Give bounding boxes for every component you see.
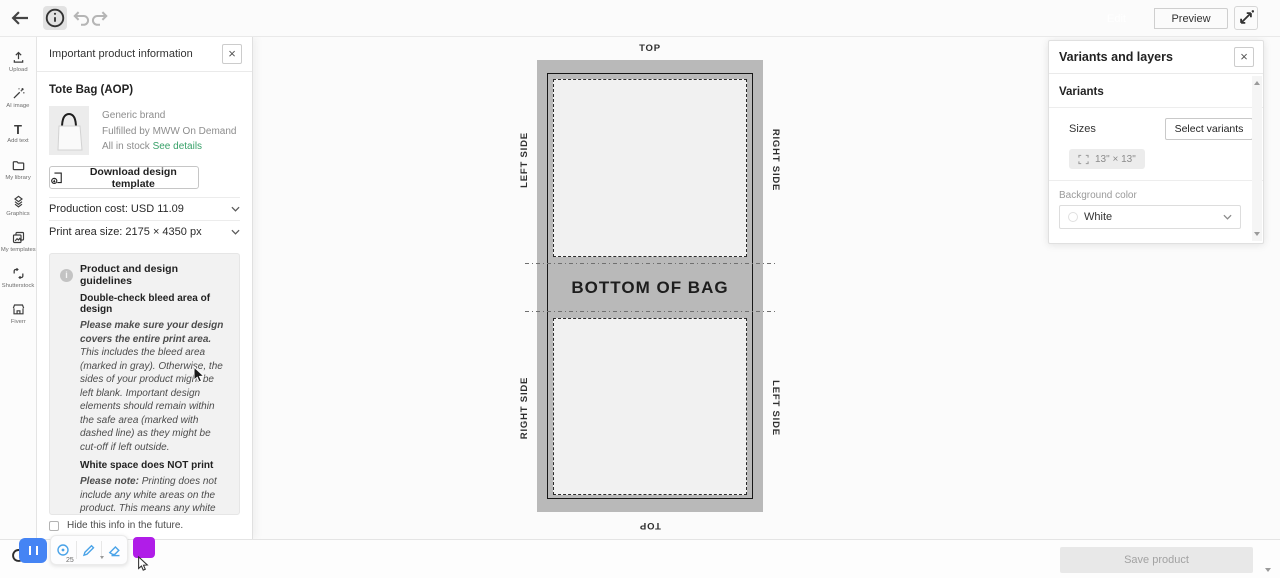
close-product-info-button[interactable]: × [222, 44, 242, 64]
bottom-of-bag-label: BOTTOM OF BAG [537, 278, 763, 298]
chevron-down-icon [231, 206, 240, 212]
sidebar-item-fiverr[interactable]: Fiverr [0, 295, 36, 331]
template-label-lower-left: RIGHT SIDE [519, 358, 531, 458]
template-label-bottom: TOP [537, 520, 763, 531]
shutterstock-icon [11, 266, 26, 281]
ai-image-icon [11, 86, 26, 101]
hide-info-label: Hide this info in the future. [67, 520, 183, 531]
product-info-button[interactable] [43, 6, 67, 30]
print-template[interactable]: TOP TOP LEFT SIDE RIGHT SIDE RIGHT SIDE … [537, 60, 763, 512]
product-thumbnail [49, 106, 89, 155]
sidebar-item-graphics[interactable]: Graphics [0, 187, 36, 223]
tote-bag-image [49, 106, 89, 155]
template-label-upper-right: RIGHT SIDE [769, 110, 781, 210]
annotation-tools-panel [50, 535, 128, 565]
sidebar-item-shutterstock[interactable]: Shutterstock [0, 259, 36, 295]
pause-recording-button[interactable] [19, 538, 47, 563]
select-variants-button[interactable]: Select variants [1165, 118, 1253, 140]
background-color-label: Background color [1049, 181, 1263, 205]
variants-panel: Variants and layers × Variants Sizes Sel… [1048, 40, 1264, 244]
upload-icon [11, 50, 26, 65]
sidebar-item-my-templates[interactable]: My templates [0, 223, 36, 259]
my-templates-icon [11, 230, 26, 245]
redo-button[interactable] [88, 6, 112, 30]
my-library-icon [11, 158, 26, 173]
product-info-header: Important product information × [37, 37, 252, 72]
add-text-icon: T [14, 123, 22, 136]
mouse-cursor [193, 366, 206, 384]
info-icon [43, 6, 67, 30]
sidebar-item-add-text[interactable]: T Add text [0, 115, 36, 151]
edit-tab[interactable]: Edit [1080, 8, 1153, 29]
guideline-heading: Double-check bleed area of design [80, 293, 229, 315]
back-arrow-icon [8, 6, 32, 30]
guidelines-title: Product and design guidelines [80, 263, 229, 287]
spotlight-tool-icon [55, 542, 71, 558]
graphics-icon [11, 194, 26, 209]
save-product-button[interactable]: Save product [1060, 547, 1253, 573]
production-cost-row[interactable]: Production cost: USD 11.09 [49, 197, 240, 220]
info-circle-icon: i [60, 269, 73, 282]
variants-scrollbar[interactable] [1252, 76, 1262, 241]
fold-line [525, 263, 775, 264]
chevron-down-icon [231, 229, 240, 235]
screen-recorder-toolbar: 25 [0, 533, 180, 578]
sizes-label: Sizes [1069, 123, 1165, 135]
sidebar-item-upload[interactable]: Upload [0, 43, 36, 79]
pause-icon [29, 546, 38, 555]
size-crop-icon [1078, 154, 1089, 165]
hide-info-checkbox[interactable] [49, 521, 59, 531]
guideline-body: Please make sure your design covers the … [80, 319, 229, 454]
fiverr-icon [11, 302, 26, 317]
close-variants-button[interactable]: × [1234, 47, 1254, 67]
fullscreen-button[interactable] [1234, 6, 1258, 30]
fold-line [525, 311, 775, 312]
panel-title: Important product information [49, 48, 222, 60]
guidelines-box: i Product and design guidelines Double-c… [49, 253, 240, 515]
product-info-panel: Important product information × Tote Bag… [37, 37, 253, 539]
redo-icon [88, 6, 112, 30]
guideline-body: Please note: Printing does not include a… [80, 475, 229, 515]
sidebar-item-ai-image[interactable]: AI image [0, 79, 36, 115]
back-button[interactable] [8, 6, 32, 30]
eraser-tool-button[interactable] [107, 542, 123, 558]
pen-options-chevron[interactable] [100, 556, 104, 559]
print-area-size-row[interactable]: Print area size: 2175 × 4350 px [49, 220, 240, 243]
spotlight-tool-button[interactable] [55, 542, 71, 558]
guideline-heading: White space does NOT print [80, 460, 229, 471]
brand-text: Generic brand [102, 108, 236, 124]
safe-area-front[interactable] [553, 79, 747, 257]
template-label-upper-left: LEFT SIDE [519, 110, 531, 210]
scroll-down-arrow[interactable] [1265, 568, 1271, 572]
eraser-tool-icon [107, 542, 123, 558]
white-color-swatch [1068, 212, 1078, 222]
stock-text: All in stock [102, 141, 150, 152]
template-label-top: TOP [537, 43, 763, 54]
background-color-dropdown[interactable]: White [1059, 205, 1241, 229]
product-name: Tote Bag (AOP) [49, 84, 240, 96]
template-label-lower-right: LEFT SIDE [769, 358, 781, 458]
safe-area-back[interactable] [553, 318, 747, 495]
variants-section-title: Variants [1049, 74, 1263, 108]
fulfilled-text: Fulfilled by MWW On Demand [102, 124, 236, 140]
see-details-link[interactable]: See details [153, 141, 202, 152]
tools-sidebar: Upload AI image T Add text My library Gr… [0, 37, 37, 539]
scroll-up-arrow[interactable] [1254, 81, 1260, 85]
sidebar-item-my-library[interactable]: My library [0, 151, 36, 187]
size-variant-chip[interactable]: 13" × 13" [1069, 149, 1145, 169]
chevron-down-icon [1223, 214, 1232, 220]
footer-bar: Save product [0, 539, 1280, 578]
hand-cursor [137, 556, 150, 572]
download-template-button[interactable]: Download design template [49, 166, 199, 189]
scroll-down-arrow[interactable] [1254, 232, 1260, 236]
pen-tool-button[interactable] [81, 542, 97, 558]
recording-timer: 25 [66, 557, 74, 564]
preview-tab[interactable]: Preview [1154, 8, 1228, 29]
pen-tool-icon [81, 542, 97, 558]
annotation-color-swatch[interactable] [133, 537, 155, 558]
download-icon [50, 171, 64, 185]
top-toolbar: Edit Preview [0, 0, 1280, 37]
variants-panel-title: Variants and layers [1059, 50, 1234, 64]
design-editor: Edit Preview Upload AI image T Add text … [0, 0, 1280, 578]
expand-icon [1235, 7, 1257, 29]
